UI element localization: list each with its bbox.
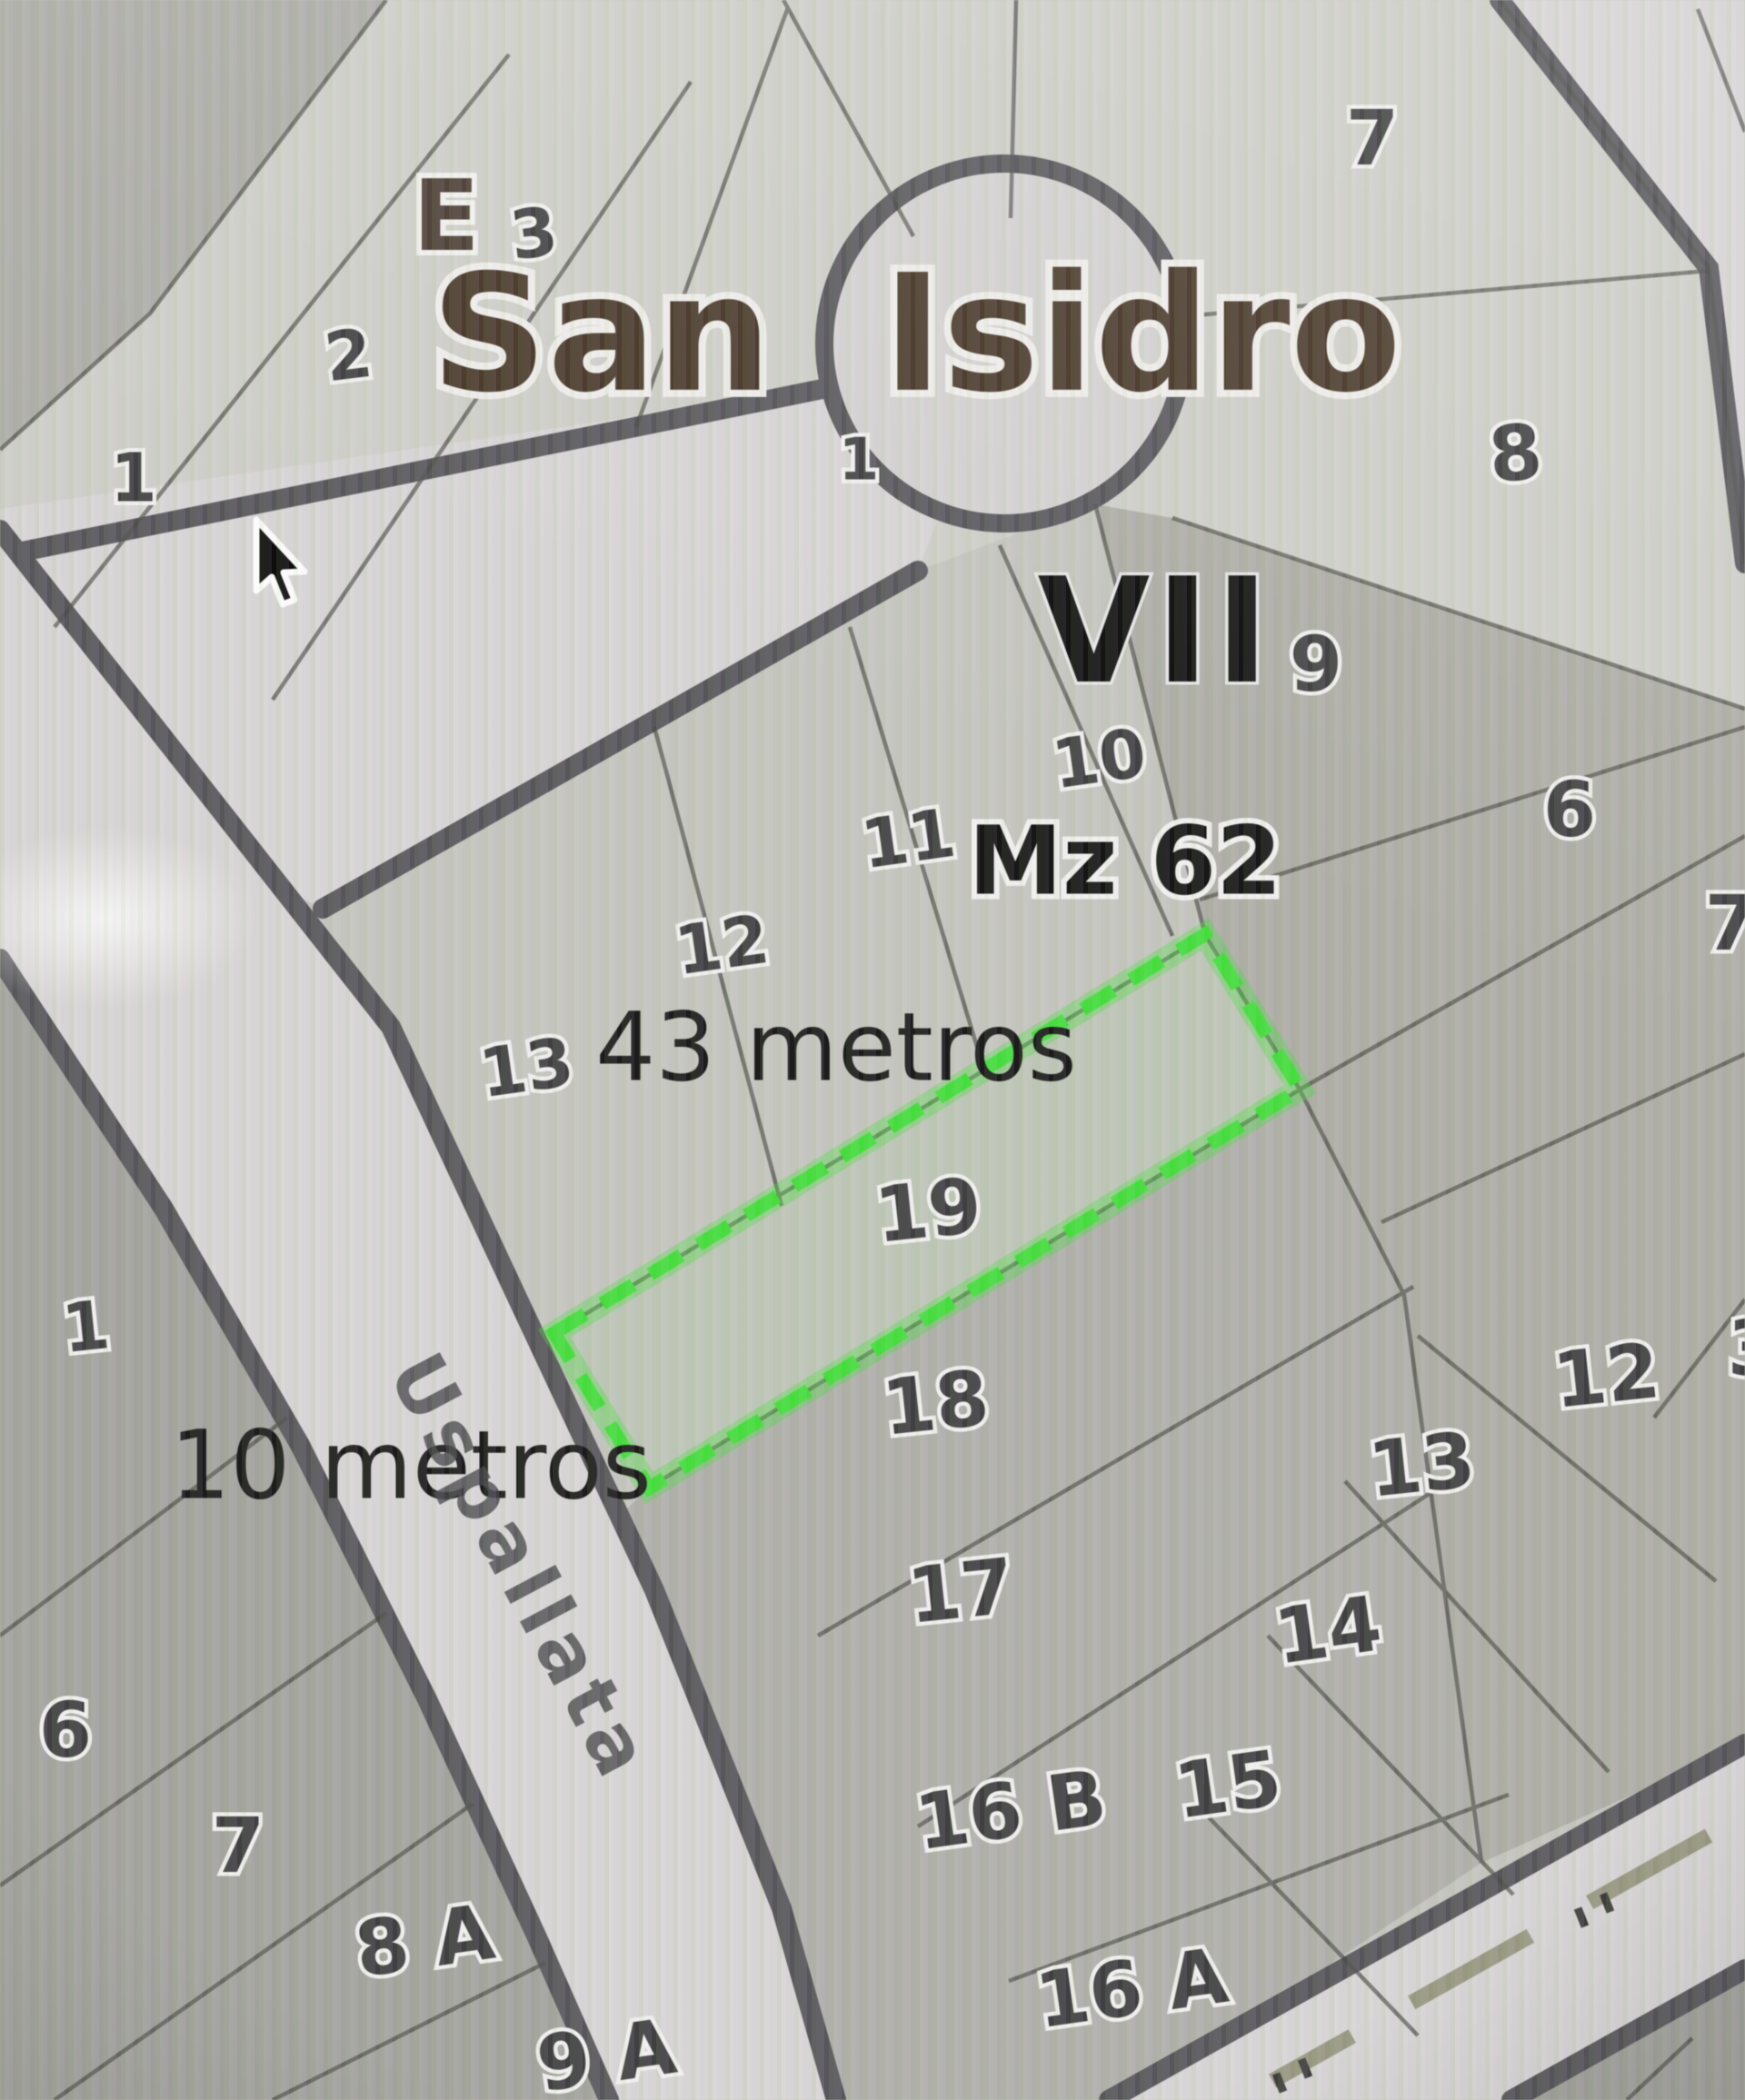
lot-label: 17 [903,1541,1019,1641]
lot-label: 10 [1047,714,1151,805]
lot-label-19: 19 [871,1160,986,1260]
lot-label: 14 [1269,1578,1386,1681]
lot-label: 11 [856,794,960,885]
lot-label: 6 [39,1686,92,1775]
map-screenshot: E San Isidro VII Mz 62 43 metros 10 metr… [0,0,1745,2100]
map-title: San Isidro [431,240,1401,428]
lot-label: 7 [1346,94,1399,183]
lot-label: 1 [110,440,157,518]
lot-label: 15 [1169,1733,1286,1836]
lot-label: 8 [1485,407,1546,501]
depth-annotation: 43 metros [595,991,1077,1102]
lot-label: 7 [1705,879,1745,968]
lot-label: 3 [506,193,563,276]
lot-label-clipped: 3 [1728,1304,1745,1393]
lot-label: 6 [1543,765,1596,854]
lot-label: 18 [878,1353,993,1453]
lot-label: 12 [670,901,773,991]
lot-label: 13 [1364,1415,1480,1515]
manzana-label: Mz 62 [969,805,1282,916]
lot-label: 1 [839,427,880,494]
lot-label: 12 [1549,1326,1664,1426]
sector-label-vii: VII [1038,546,1275,716]
lot-label: 7 [212,1801,264,1890]
lot-label: 9 [1290,620,1342,709]
lot-label: 2 [321,314,377,398]
lot-label: 13 [474,1023,578,1114]
lot-label: 1 [58,1286,113,1368]
cadastral-map-canvas[interactable]: E San Isidro VII Mz 62 43 metros 10 metr… [0,0,1745,2100]
